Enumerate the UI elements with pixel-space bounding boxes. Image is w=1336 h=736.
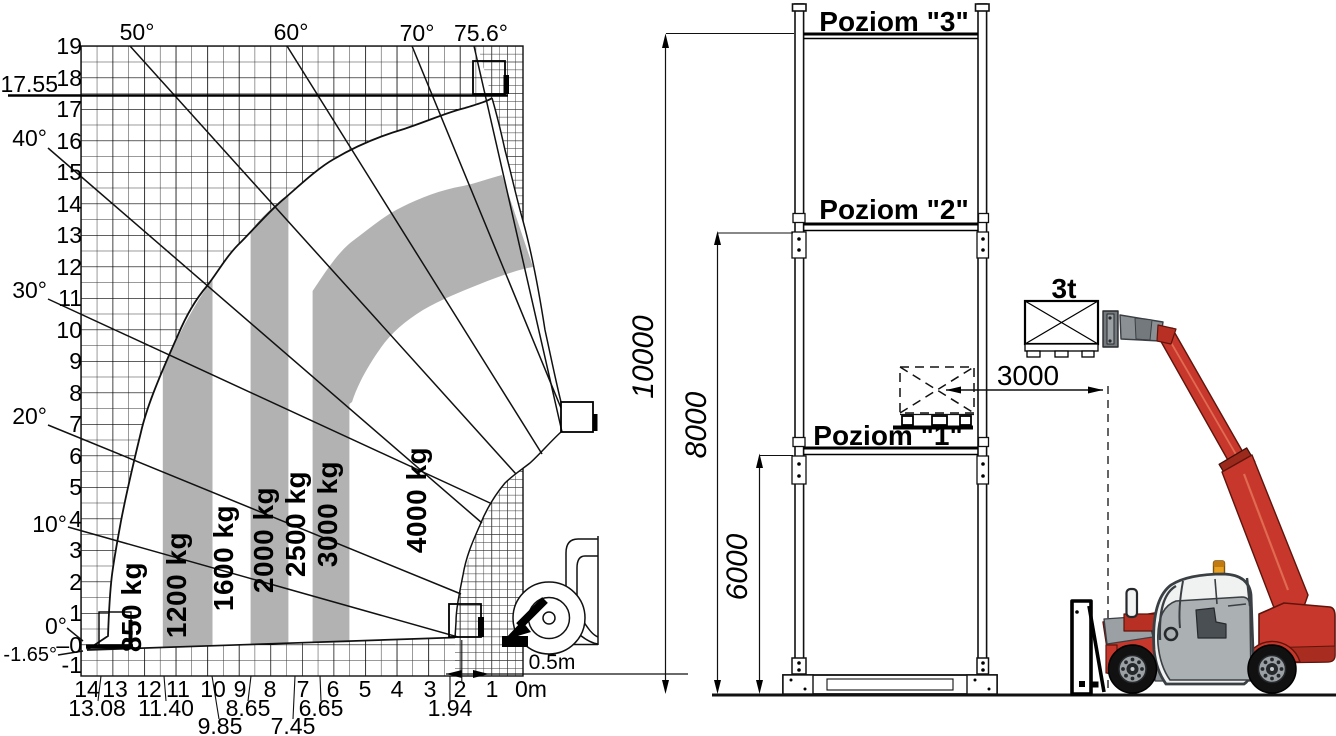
svg-text:18: 18 <box>56 65 82 91</box>
svg-text:7: 7 <box>69 411 82 437</box>
svg-text:8: 8 <box>69 380 82 406</box>
svg-text:9.85: 9.85 <box>198 713 243 736</box>
svg-text:9: 9 <box>69 348 82 374</box>
svg-text:10000: 10000 <box>627 315 660 399</box>
svg-text:15: 15 <box>56 159 82 185</box>
svg-text:1600 kg: 1600 kg <box>208 505 239 611</box>
svg-text:5: 5 <box>359 676 372 702</box>
svg-text:850 kg: 850 kg <box>116 562 147 652</box>
svg-text:70°: 70° <box>400 20 435 46</box>
svg-text:1.94: 1.94 <box>428 695 473 721</box>
svg-text:10: 10 <box>200 676 226 702</box>
svg-text:60°: 60° <box>274 19 309 45</box>
svg-text:2: 2 <box>69 569 82 595</box>
svg-text:-1.65°: -1.65° <box>3 644 57 666</box>
svg-text:30°: 30° <box>12 277 47 303</box>
svg-text:5: 5 <box>69 474 82 500</box>
svg-text:0°: 0° <box>45 613 67 639</box>
svg-text:2500 kg: 2500 kg <box>280 471 311 577</box>
svg-text:Poziom "2": Poziom "2" <box>819 194 968 225</box>
svg-text:1200 kg: 1200 kg <box>161 532 192 638</box>
svg-text:13: 13 <box>56 222 82 248</box>
svg-text:3000: 3000 <box>997 360 1059 391</box>
svg-text:0.5m: 0.5m <box>529 651 576 674</box>
svg-text:17: 17 <box>56 96 82 122</box>
svg-text:50°: 50° <box>120 19 155 45</box>
svg-text:4: 4 <box>69 506 82 532</box>
svg-text:10: 10 <box>56 317 82 343</box>
svg-text:2000 kg: 2000 kg <box>248 487 279 593</box>
svg-text:3: 3 <box>69 537 82 563</box>
svg-text:13.08: 13.08 <box>68 695 126 721</box>
svg-text:14: 14 <box>56 191 82 217</box>
svg-text:20°: 20° <box>12 403 47 429</box>
svg-text:1: 1 <box>69 600 82 626</box>
svg-text:0m: 0m <box>515 676 547 702</box>
svg-text:40°: 40° <box>12 125 47 151</box>
svg-text:16: 16 <box>56 128 82 154</box>
svg-text:-1: -1 <box>62 652 82 678</box>
svg-text:3t: 3t <box>1052 273 1077 304</box>
svg-text:4000 kg: 4000 kg <box>401 447 432 553</box>
svg-text:1: 1 <box>486 676 499 702</box>
svg-text:6: 6 <box>69 443 82 469</box>
svg-text:11: 11 <box>58 285 82 311</box>
svg-text:19: 19 <box>56 33 82 59</box>
svg-text:10°: 10° <box>32 511 67 537</box>
svg-text:4: 4 <box>391 676 404 702</box>
svg-text:17.55: 17.55 <box>0 71 58 97</box>
svg-text:3000 kg: 3000 kg <box>312 461 343 567</box>
svg-text:12: 12 <box>56 254 82 280</box>
svg-text:6000: 6000 <box>721 533 754 600</box>
svg-text:8000: 8000 <box>680 391 713 458</box>
svg-text:7.45: 7.45 <box>271 713 316 736</box>
svg-text:11.40: 11.40 <box>138 695 194 721</box>
svg-text:Poziom "3": Poziom "3" <box>819 6 968 37</box>
svg-text:75.6°: 75.6° <box>454 20 508 46</box>
